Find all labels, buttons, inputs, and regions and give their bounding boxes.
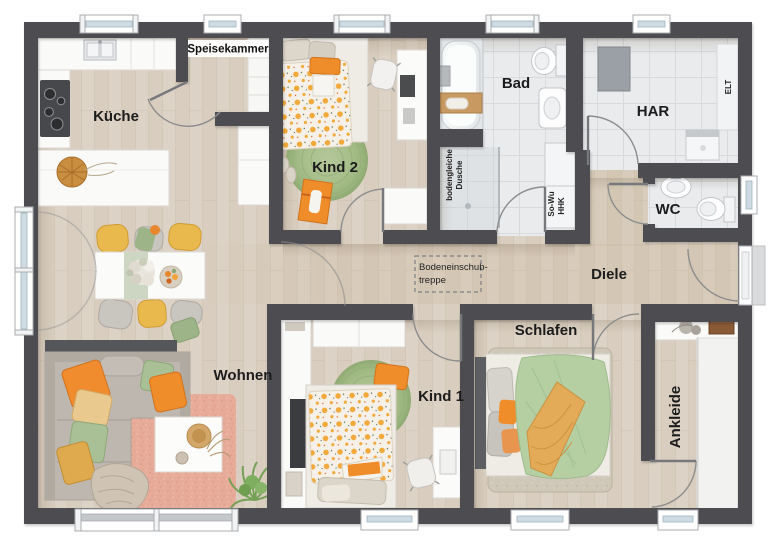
svg-text:WC: WC: [656, 201, 681, 218]
svg-text:HHK: HHK: [557, 197, 566, 215]
svg-text:Küche: Küche: [93, 108, 139, 125]
svg-text:Bodeneinschub-: Bodeneinschub-: [419, 262, 488, 273]
svg-text:HAR: HAR: [637, 103, 670, 120]
svg-text:Dusche: Dusche: [455, 160, 464, 189]
svg-text:Bad: Bad: [502, 75, 530, 92]
svg-text:Wohnen: Wohnen: [214, 367, 273, 384]
svg-text:Kind 1: Kind 1: [418, 388, 464, 405]
svg-text:bodengleiche: bodengleiche: [445, 149, 454, 201]
svg-text:Speisekammer: Speisekammer: [187, 44, 269, 56]
svg-text:Ankleide: Ankleide: [667, 386, 684, 449]
svg-text:So-Wu: So-Wu: [547, 191, 556, 216]
svg-text:Diele: Diele: [591, 266, 627, 283]
svg-text:Kind 2: Kind 2: [312, 159, 358, 176]
svg-text:treppe: treppe: [419, 275, 446, 286]
svg-text:Schlafen: Schlafen: [515, 322, 578, 339]
svg-text:ELT: ELT: [724, 80, 733, 95]
